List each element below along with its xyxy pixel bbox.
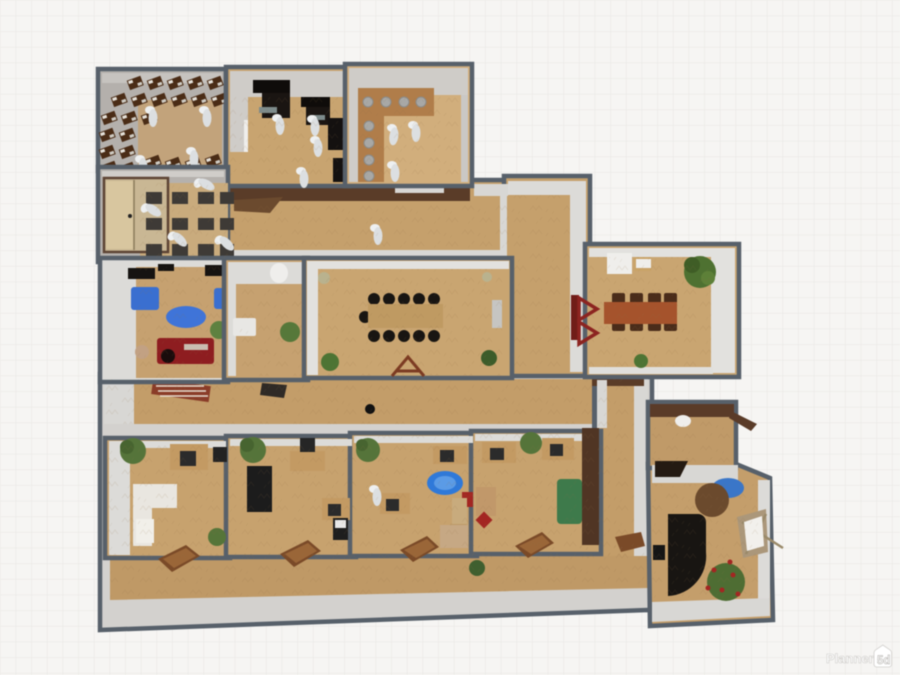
svg-text:Planner: Planner bbox=[826, 651, 874, 666]
svg-text:5d: 5d bbox=[877, 655, 890, 667]
